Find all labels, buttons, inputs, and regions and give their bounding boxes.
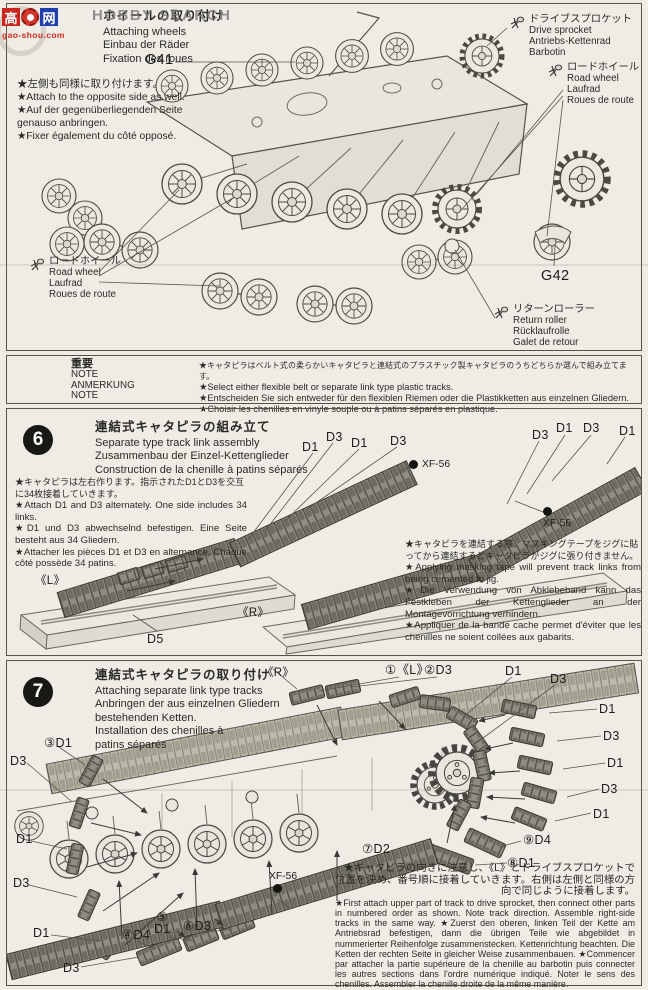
part-label-d3: D3 [326,431,343,443]
seq-label-6-d3: ⑥D3 [183,920,211,932]
note-line: ★キャタピラを連結する際、マスキングテープをジグに貼ってから連結するとキャタピラ… [405,539,641,562]
logo-hi-glyph: 高 [2,8,20,26]
callout-de: Laufrad [567,84,639,95]
part-label-d3: D3 [603,730,620,742]
part-label-d3: D3 [550,673,567,685]
part-label-d1: D1 [593,808,610,820]
part-label-g42: G42 [541,270,569,282]
note-line: ★キャタピラは左右作ります。指示されたD1とD3を交互に34枚接着していきます。 [15,477,247,500]
paint-code: XF-56 [269,871,297,882]
note-latin: ★First attach upper part of track to dri… [335,898,635,990]
seq-label-4-d4: ④D4 [122,929,150,941]
note-line: ★Entscheiden Sie sich entweder für den f… [199,393,639,404]
step6-title-fr: Construction de la chenille à patins sép… [95,464,345,478]
part-label-d1: D1 [599,703,616,715]
callout-ja: ロードホイール [49,256,121,267]
note-ja: ★キャタピラの向きに注意し、《L》とドライブスプロケットで位置を決め、番号順に接… [335,863,635,898]
note-line: ★Attacher les pièces D1 et D3 en alterna… [15,547,247,570]
watermark-domain: gao-shou.com [2,30,65,40]
note-line: ★Auf der gegenüberliegenden Seite genaus… [17,104,213,130]
step6-title-ja: 連結式キャタピラの組み立て [95,421,345,435]
watermark-logo: 高 网 [2,8,58,26]
jig-label-right: 《R》 [237,607,269,619]
callout-fr: Roues de route [567,95,639,106]
step7-title: 連結式キャタピラの取り付け Attaching separate link ty… [95,669,313,752]
note-line: ★Select either flexible belt or separate… [199,382,639,393]
step6-section: 6 連結式キャタピラの組み立て Separate type track link… [6,408,642,656]
step7-title-fr: Installation des chenilles à patins sépa… [95,725,255,752]
step7-title-de: Anbringen der aus einzelnen Gliedern bes… [95,698,313,725]
step7-section: 7 連結式キャタピラの取り付け Attaching separate link … [6,660,642,986]
callout-ja: リターンローラー [513,304,595,315]
note-line: ★Fixer également du côté opposé. [17,130,213,143]
note-section: 重要 NOTE ANMERKUNG NOTE ★キャタピラはベルト式の柔らかいキ… [6,355,642,404]
callout-de: Antriebs-Kettenrad [529,36,632,47]
callout-fr: Barbotin [529,47,632,58]
seq-label-1-l: ①《L》 [385,664,429,676]
paint-callout-xf56: XF-56 [269,871,297,893]
note-line: ★Attach D1 and D3 alternately. One side … [15,500,247,523]
part-label-d1: D1 [351,437,368,449]
screw-icon [547,63,563,79]
instruction-sheet-page: 高 网 gao-shou.com HOBBY SEARCH [0,0,648,990]
part-label-d3: D3 [532,429,549,441]
step6-number-badge: 6 [23,425,53,455]
screw-icon [493,305,509,321]
part-label-d1: D1 [505,665,522,677]
note-line: ★D1 und D3 abwechselnd befestigen. Eine … [15,523,247,546]
note-line: ★Applying masking tape will prevent trac… [405,562,641,585]
road-wheel-right-callout: ロードホイール Road wheel Laufrad Roues de rout… [547,62,639,106]
note-line: ★キャタピラはベルト式の柔らかいキャタピラと連結式のプラスチック製キャタピラのう… [199,360,639,382]
step6-tip: ★キャタピラを連結する際、マスキングテープをジグに貼ってから連結するとキャタピラ… [405,539,641,643]
logo-net-glyph: 网 [40,8,58,26]
part-label-d3: D3 [583,422,600,434]
part-label-d1: D1 [607,757,624,769]
part-label-d3: D3 [13,877,30,889]
callout-fr: Galet de retour [513,337,595,348]
return-roller-callout: リターンローラー Return roller Rücklaufrolle Gal… [493,304,595,348]
callout-en: Drive sprocket [529,25,632,36]
note-line: ★Die Verwendung von Abklebeband kann das… [405,585,641,620]
paint-dot-icon [273,884,282,893]
callout-de: Laufrad [49,278,121,289]
callout-en: Road wheel [49,267,121,278]
paint-dot-icon [409,460,418,469]
callout-de: Rücklaufrolle [513,326,595,337]
part-label-d5: D5 [147,633,164,645]
paint-code: XF-56 [422,459,450,470]
callout-en: Return roller [513,315,595,326]
note-line: ★Attach to the opposite side as well. [17,91,213,104]
drive-sprocket-callout: ドライブスプロケット Drive sprocket Antriebs-Kette… [509,14,632,58]
note-header: NOTE [71,370,135,381]
paint-callout-xf56: XF-56 [409,459,450,470]
part-label-d1: D1 [556,422,573,434]
callout-fr: Roues de route [49,289,121,300]
part-label-d1: D1 [619,425,636,437]
callout-ja: ロードホイール [567,62,639,73]
step7-notes: ★キャタピラの向きに注意し、《L》とドライブスプロケットで位置を決め、番号順に接… [335,863,635,990]
jig-label-left: 《L》 [35,575,65,587]
paint-dot-icon [543,507,552,516]
note-line: ★Appliquer de la bande cache permet d'év… [405,620,641,643]
note-header: NOTE [71,391,135,402]
seq-label-7-d2: ⑦D2 [362,843,390,855]
step6-notes: ★キャタピラは左右作ります。指示されたD1とD3を交互に34枚接着していきます。… [15,477,247,570]
paint-code: XF-56 [543,518,571,529]
step5-notes: ★左側も同様に取り付けます。 ★Attach to the opposite s… [17,78,213,143]
seq-label-2-d3: ②D3 [424,664,452,676]
seq-label-9-d4: ⑨D4 [523,834,551,846]
part-label-d1: D1 [16,833,33,845]
note-line: ★左側も同様に取り付けます。 [17,78,213,91]
part-label-d1: D1 [33,927,50,939]
part-label-d3: D3 [63,962,80,974]
callout-en: Road wheel [567,73,639,84]
seq-label-3-d1: ③D1 [44,737,72,749]
road-wheel-left-callout: ロードホイール Road wheel Laufrad Roues de rout… [29,256,121,300]
callout-ja: ドライブスプロケット [529,14,632,25]
track-label-r: 《R》 [262,667,294,679]
gear-icon [21,8,39,26]
screw-icon [509,15,525,31]
part-label-d3: D3 [390,435,407,447]
screw-icon [29,257,45,273]
note-lines: ★キャタピラはベルト式の柔らかいキャタピラと連結式のプラスチック製キャタピラのう… [199,360,639,415]
step7-number-badge: 7 [23,677,53,707]
page-watermark: 高 网 gao-shou.com HOBBY SEARCH [0,0,300,60]
part-label-d1: D1 [302,441,319,453]
step7-title-en: Attaching separate link type tracks [95,685,313,699]
watermark-brand: HOBBY SEARCH [92,7,231,24]
paint-callout-xf56: XF-56 [543,507,571,529]
part-label-d3: D3 [10,755,27,767]
seq-label-5-d1: ⑤ D1 [154,911,171,935]
part-label-d1: D1 [154,923,171,935]
part-label-d3: D3 [601,783,618,795]
note-headers: 重要 NOTE ANMERKUNG NOTE [71,359,135,402]
